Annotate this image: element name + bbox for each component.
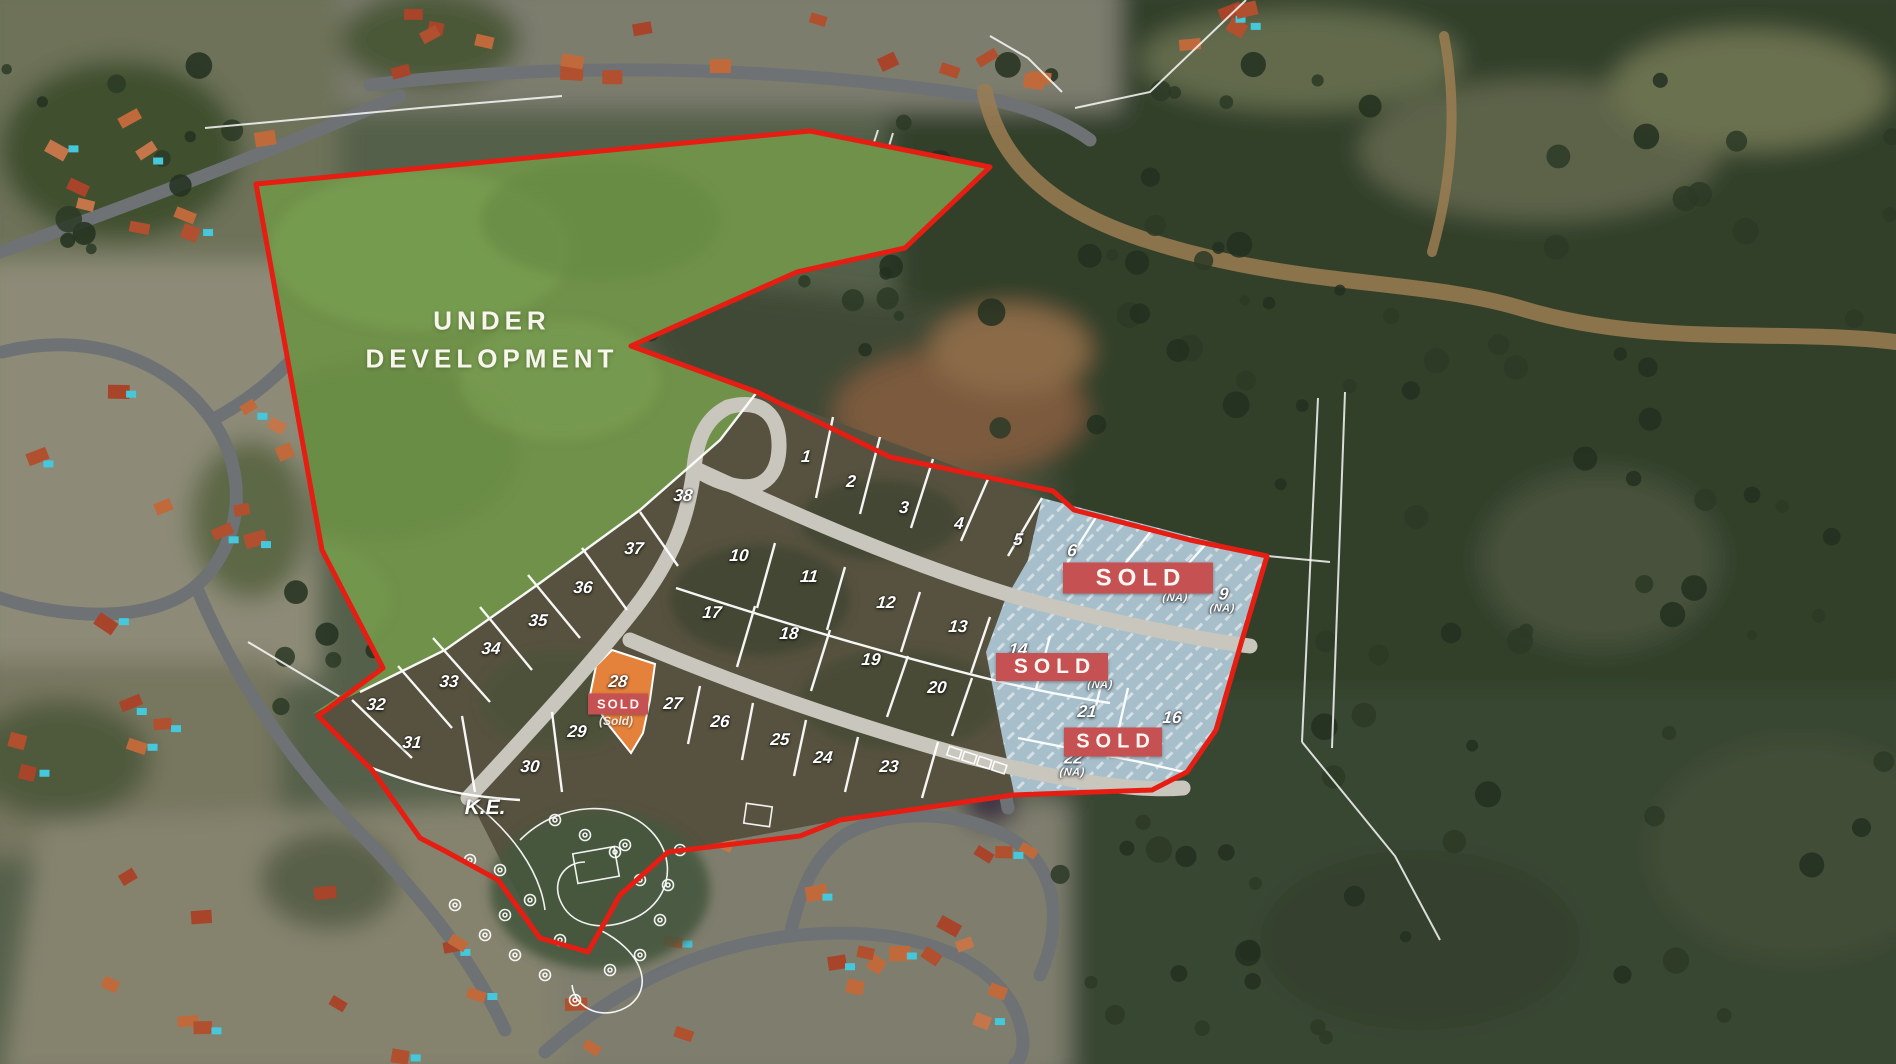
site-plan-map: UNDER DEVELOPMENT K.E. (Sold) 123456(NA)…	[0, 0, 1896, 1064]
satellite-map-canvas	[0, 0, 1896, 1064]
